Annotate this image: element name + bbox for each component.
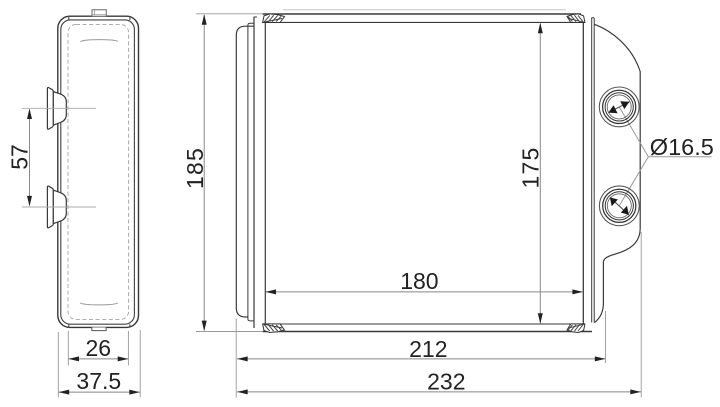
- svg-text:180: 180: [400, 268, 438, 294]
- svg-text:185: 185: [182, 147, 208, 189]
- svg-text:37.5: 37.5: [76, 368, 121, 394]
- svg-text:Ø16.5: Ø16.5: [650, 134, 714, 160]
- svg-text:26: 26: [86, 335, 112, 361]
- svg-text:57: 57: [6, 144, 32, 170]
- svg-text:232: 232: [427, 368, 465, 394]
- svg-text:212: 212: [409, 336, 447, 362]
- svg-text:175: 175: [517, 147, 543, 189]
